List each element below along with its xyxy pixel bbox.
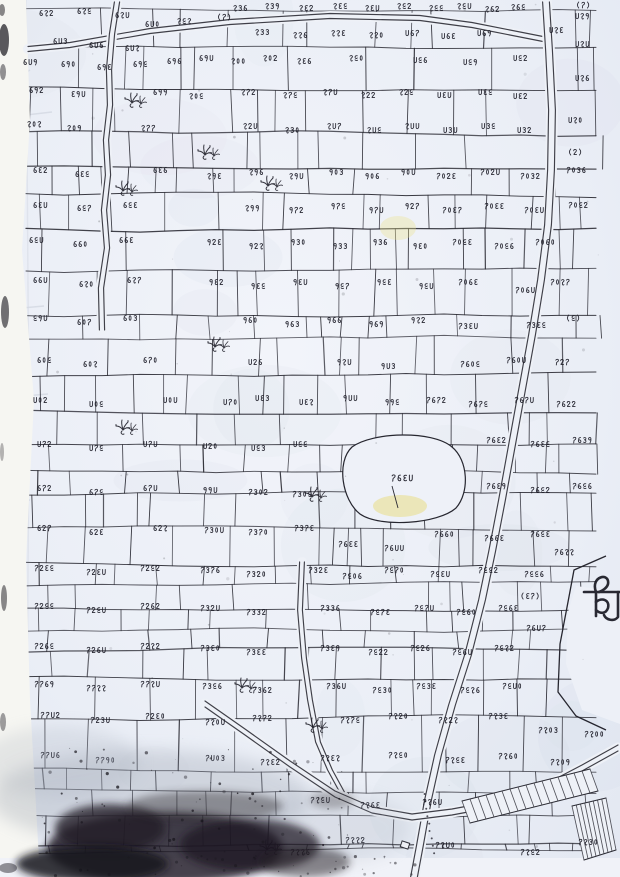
scanned-map-page: [0, 0, 620, 877]
yellow-stain: [380, 216, 416, 240]
yellow-stain: [373, 495, 427, 517]
cadastral-map-canvas: [0, 0, 620, 877]
